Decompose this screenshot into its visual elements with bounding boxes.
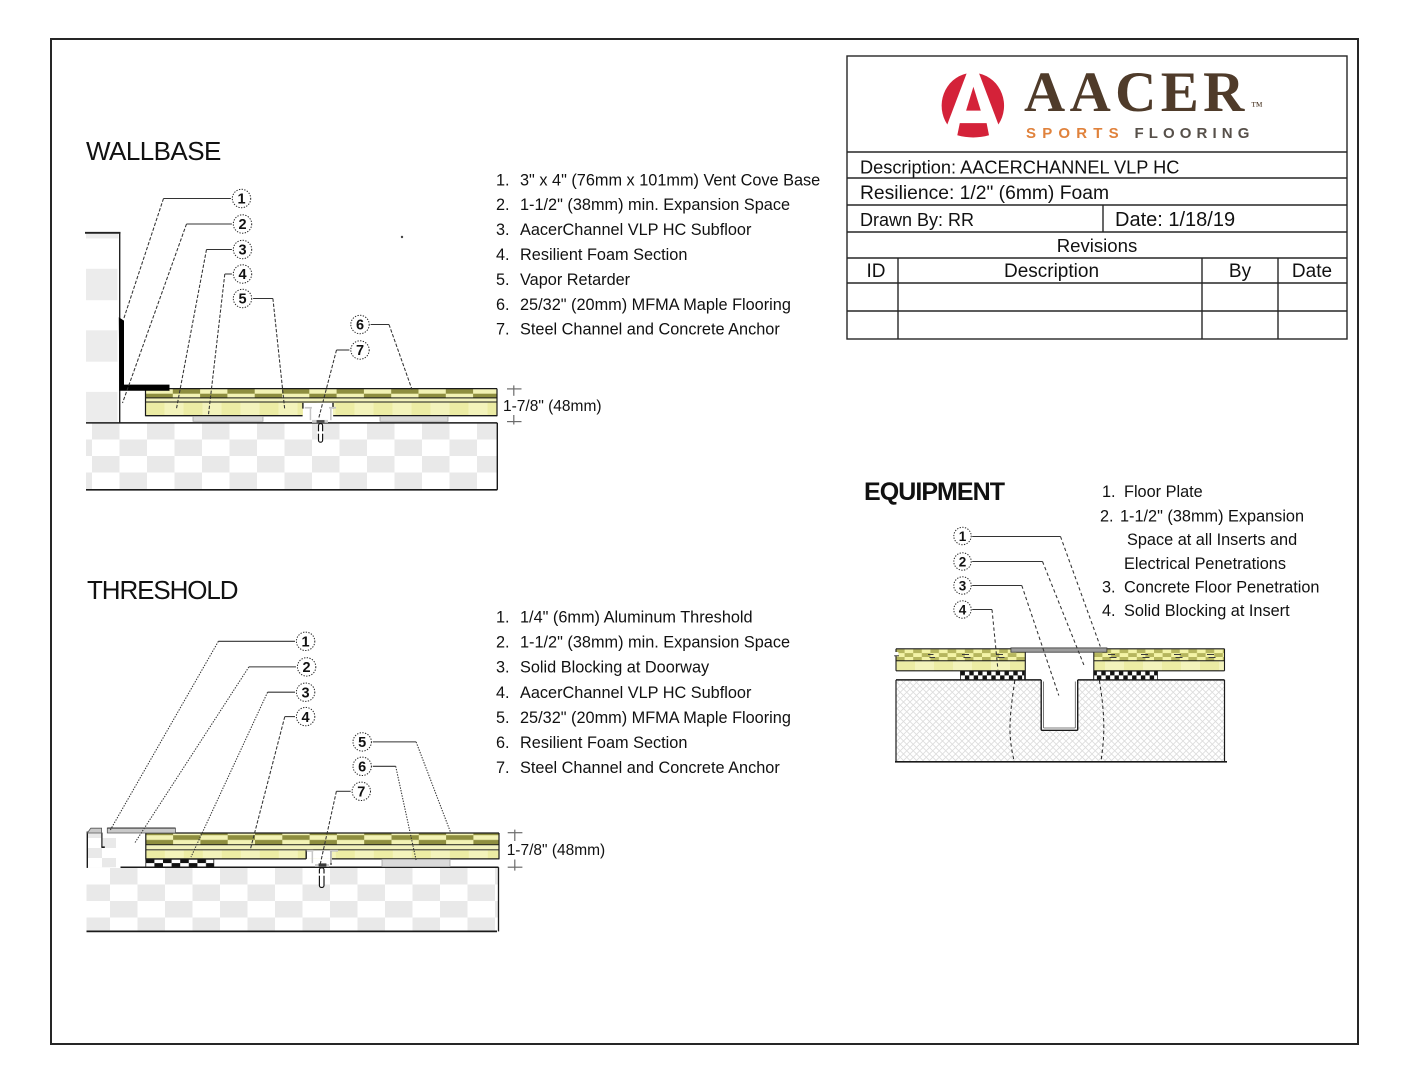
svg-text:7: 7	[357, 785, 365, 801]
svg-text:2.: 2.	[1100, 508, 1114, 526]
svg-text:Resilience: 1/2" (6mm) Foam: Resilience: 1/2" (6mm) Foam	[860, 183, 1109, 204]
svg-text:3: 3	[959, 578, 967, 593]
svg-text:1/4" (6mm) Aluminum Threshold: 1/4" (6mm) Aluminum Threshold	[520, 608, 753, 626]
svg-text:AACER: AACER	[1024, 61, 1249, 124]
svg-text:™: ™	[1251, 99, 1263, 113]
svg-text:FLOORING: FLOORING	[1135, 125, 1255, 142]
svg-text:3: 3	[302, 685, 310, 701]
svg-text:Solid Blocking at Insert: Solid Blocking at Insert	[1124, 602, 1290, 620]
svg-text:Description: AACERCHANNEL VLP: Description: AACERCHANNEL VLP HC	[860, 158, 1179, 178]
svg-text:EQUIPMENT: EQUIPMENT	[864, 478, 1005, 506]
svg-text:ID: ID	[867, 261, 886, 282]
svg-text:Resilient Foam Section: Resilient Foam Section	[520, 734, 687, 752]
svg-text:2: 2	[959, 554, 967, 569]
svg-text:4.: 4.	[496, 246, 510, 264]
svg-text:1.: 1.	[496, 171, 510, 189]
svg-text:1-7/8" (48mm): 1-7/8" (48mm)	[503, 398, 602, 415]
svg-text:1: 1	[959, 529, 967, 544]
svg-text:Description: Description	[1004, 261, 1099, 282]
svg-text:1: 1	[237, 192, 245, 208]
svg-text:6: 6	[356, 318, 364, 334]
svg-text:5.: 5.	[496, 271, 510, 289]
svg-text:3.: 3.	[496, 221, 510, 239]
svg-text:Revisions: Revisions	[1057, 235, 1138, 256]
svg-text:Steel Channel and Concrete Anc: Steel Channel and Concrete Anchor	[520, 321, 780, 339]
svg-text:3.: 3.	[1102, 578, 1116, 596]
svg-text:Concrete Floor Penetration: Concrete Floor Penetration	[1124, 578, 1319, 596]
svg-text:1.: 1.	[1102, 483, 1116, 501]
svg-text:1.: 1.	[496, 608, 510, 626]
svg-text:Drawn By: RR: Drawn By: RR	[860, 210, 974, 230]
svg-text:2.: 2.	[496, 634, 510, 652]
svg-text:25/32" (20mm) MFMA Maple Floor: 25/32" (20mm) MFMA Maple Flooring	[520, 296, 791, 314]
svg-text:4.: 4.	[496, 684, 510, 702]
svg-text:5.: 5.	[496, 709, 510, 727]
svg-text:Solid Blocking at Doorway: Solid Blocking at Doorway	[520, 659, 710, 677]
svg-text:7: 7	[356, 343, 364, 359]
svg-text:4: 4	[238, 267, 246, 283]
svg-text:AacerChannel VLP HC Subfloor: AacerChannel VLP HC Subfloor	[520, 684, 752, 702]
svg-text:AacerChannel VLP HC Subfloor: AacerChannel VLP HC Subfloor	[520, 221, 752, 239]
svg-text:Space at all Inserts and: Space at all Inserts and	[1127, 531, 1297, 549]
svg-text:Vapor Retarder: Vapor Retarder	[520, 271, 631, 289]
svg-text:7.: 7.	[496, 321, 510, 339]
svg-text:4: 4	[302, 710, 310, 726]
svg-text:4: 4	[959, 602, 967, 617]
svg-text:5: 5	[238, 292, 246, 308]
svg-text:Floor Plate: Floor Plate	[1124, 483, 1203, 501]
svg-text:1-1/2" (38mm) min. Expansion S: 1-1/2" (38mm) min. Expansion Space	[520, 196, 790, 214]
svg-text:By: By	[1229, 261, 1252, 282]
svg-text:1-1/2" (38mm) Expansion: 1-1/2" (38mm) Expansion	[1120, 508, 1304, 526]
svg-text:SPORTS: SPORTS	[1026, 125, 1125, 142]
svg-text:1: 1	[302, 635, 310, 651]
svg-text:2.: 2.	[496, 196, 510, 214]
svg-text:6.: 6.	[496, 296, 510, 314]
svg-text:Date: Date	[1292, 261, 1332, 282]
svg-text:3" x 4" (76mm x 101mm) Vent Co: 3" x 4" (76mm x 101mm) Vent Cove Base	[520, 171, 820, 189]
svg-text:Electrical Penetrations: Electrical Penetrations	[1124, 555, 1286, 573]
svg-text:WALLBASE: WALLBASE	[86, 136, 221, 166]
svg-text:Date: 1/18/19: Date: 1/18/19	[1115, 209, 1235, 231]
svg-text:3: 3	[238, 243, 246, 259]
svg-text:2: 2	[303, 660, 311, 676]
svg-text:THRESHOLD: THRESHOLD	[87, 575, 238, 605]
svg-text:Steel Channel and Concrete Anc: Steel Channel and Concrete Anchor	[520, 759, 780, 777]
svg-text:7.: 7.	[496, 759, 510, 777]
svg-text:2: 2	[238, 217, 246, 233]
svg-text:6.: 6.	[496, 734, 510, 752]
svg-text:1-1/2" (38mm) min. Expansion S: 1-1/2" (38mm) min. Expansion Space	[520, 634, 790, 652]
svg-text:3.: 3.	[496, 659, 510, 677]
svg-text:1-7/8" (48mm): 1-7/8" (48mm)	[507, 842, 606, 859]
svg-text:Resilient Foam Section: Resilient Foam Section	[520, 246, 687, 264]
svg-text:25/32" (20mm) MFMA Maple Floor: 25/32" (20mm) MFMA Maple Flooring	[520, 709, 791, 727]
svg-text:6: 6	[358, 760, 366, 776]
svg-text:5: 5	[358, 735, 366, 751]
svg-text:4.: 4.	[1102, 602, 1116, 620]
